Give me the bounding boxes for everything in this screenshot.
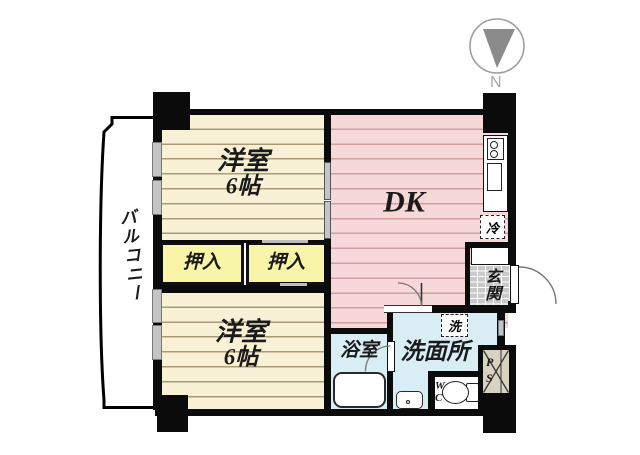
washroom-window <box>498 320 504 336</box>
washing-machine-space: 洗 <box>441 314 468 337</box>
bathroom-door-frame <box>387 341 395 372</box>
label-dk: DK <box>383 186 425 218</box>
wall-bath-wash-lower <box>387 372 393 410</box>
wall-bathroom-top <box>324 328 393 334</box>
entrance-door-arc <box>519 267 556 304</box>
closet-door-track-bottom <box>280 283 307 286</box>
label-washing-machine: 洗 <box>448 316 461 335</box>
wall-closet-bottom <box>153 285 331 293</box>
balcony-window-3 <box>152 289 162 323</box>
wall-wc-top <box>428 371 481 377</box>
bedroom-upper-size: 6帖 <box>217 175 269 199</box>
bedroom-upper-name: 洋室 <box>217 147 269 174</box>
wall-washroom-top <box>432 305 513 313</box>
bedroom-lower-size: 6帖 <box>215 346 267 370</box>
sink-faucet-dot <box>406 400 410 404</box>
label-closet-right: 押入 <box>267 253 305 273</box>
label-balcony: バルコニー <box>116 208 144 304</box>
shoe-cabinet <box>471 246 511 265</box>
kitchen-sink <box>487 163 503 191</box>
label-bedroom-upper: 洋室 6帖 <box>217 147 269 198</box>
stove-burner-bottom <box>490 150 499 159</box>
label-washroom: 洗面所 <box>401 340 470 364</box>
sliding-door-panel-2 <box>324 201 331 239</box>
wall-bedroom-dk-upper <box>324 115 331 162</box>
compass-needle-icon <box>483 29 515 68</box>
wall-top <box>188 109 485 115</box>
label-closet-left: 押入 <box>183 253 221 273</box>
balcony-window-4 <box>152 325 162 360</box>
wall-bedroom-dk-lower <box>324 239 331 410</box>
wall-bottom-left-pillar <box>157 395 188 432</box>
label-entrance: 玄関 <box>482 268 499 302</box>
stove-burner-top <box>490 141 499 150</box>
balcony-window-1 <box>152 142 162 177</box>
bedroom-lower-name: 洋室 <box>215 318 267 345</box>
sliding-door-panel-1 <box>324 162 331 200</box>
balcony-window-2 <box>152 180 162 215</box>
wall-entrance-top <box>468 242 512 248</box>
wall-bottom-right-pillar <box>483 397 516 433</box>
wall-bottom <box>155 409 485 416</box>
wall-top-right-pillar <box>483 93 516 133</box>
refrigerator-space: 冷 <box>480 215 505 239</box>
dk-washroom-door-sill <box>384 305 432 313</box>
label-bathroom: 浴室 <box>340 341 378 361</box>
wall-entrance-left <box>465 242 470 305</box>
compass-circle <box>470 19 524 73</box>
closet-door-track-top <box>262 240 308 243</box>
label-refrigerator: 冷 <box>486 218 499 237</box>
label-ps: PS <box>486 355 499 386</box>
compass-north-label: N <box>490 74 502 92</box>
floor-plan: 洋室 6帖 洋室 6帖 DK 押入 押入 バルコニー 玄関 浴室 洗面所 WC … <box>0 0 640 455</box>
wall-wc-left <box>428 377 435 410</box>
label-wc: WC <box>435 380 447 404</box>
bathtub <box>333 372 386 408</box>
entrance-door-panel <box>510 265 519 304</box>
label-bedroom-lower: 洋室 6帖 <box>215 318 267 369</box>
